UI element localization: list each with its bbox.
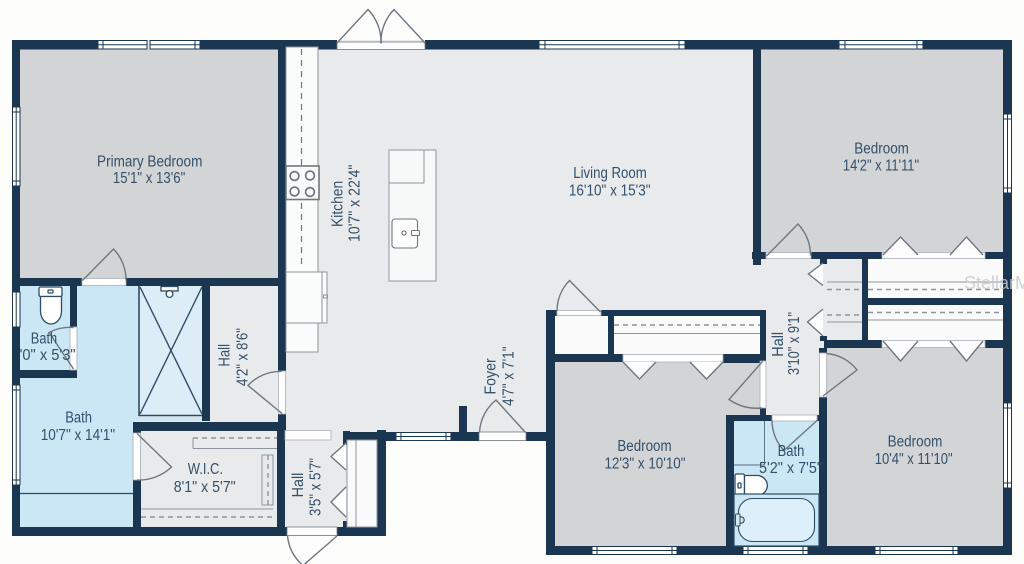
svg-text:Kitchen: Kitchen xyxy=(330,181,347,227)
svg-text:14'2" x 11'11": 14'2" x 11'11" xyxy=(843,158,919,175)
svg-text:StellarMLS: StellarMLS xyxy=(964,273,1024,293)
svg-text:Bath: Bath xyxy=(65,410,92,427)
svg-text:Hall: Hall xyxy=(217,344,234,367)
svg-text:8'1" x 5'7": 8'1" x 5'7" xyxy=(174,479,236,496)
svg-text:'0" x 5'3": '0" x 5'3" xyxy=(20,347,76,364)
svg-text:Foyer: Foyer xyxy=(483,358,500,394)
svg-text:4'2" x 8'6": 4'2" x 8'6" xyxy=(235,328,252,386)
svg-text:4'7" x 7'1": 4'7" x 7'1" xyxy=(501,346,518,406)
svg-text:Bath: Bath xyxy=(31,331,57,348)
svg-text:10'7" x 14'1": 10'7" x 14'1" xyxy=(41,427,115,444)
svg-text:15'1" x 13'6": 15'1" x 13'6" xyxy=(113,170,185,187)
svg-text:Living Room: Living Room xyxy=(573,165,647,182)
svg-text:Bedroom: Bedroom xyxy=(617,438,671,455)
svg-text:Bath: Bath xyxy=(778,443,805,460)
svg-text:Primary Bedroom: Primary Bedroom xyxy=(97,154,202,171)
svg-text:5'2" x 7'5": 5'2" x 7'5" xyxy=(759,460,822,477)
svg-text:Bedroom: Bedroom xyxy=(854,141,909,158)
svg-text:10'4" x 11'10": 10'4" x 11'10" xyxy=(875,451,953,468)
svg-text:Bedroom: Bedroom xyxy=(888,433,943,450)
svg-text:10'7" x 22'4": 10'7" x 22'4" xyxy=(347,165,364,242)
svg-text:W.I.C.: W.I.C. xyxy=(188,461,223,478)
svg-text:12'3" x 10'10": 12'3" x 10'10" xyxy=(604,456,685,473)
svg-text:3'5" x 5'7": 3'5" x 5'7" xyxy=(308,458,325,516)
svg-text:16'10" x 15'3": 16'10" x 15'3" xyxy=(569,182,651,199)
svg-text:Hall: Hall xyxy=(290,473,307,498)
svg-text:3'10" x 9'1": 3'10" x 9'1" xyxy=(786,312,803,375)
svg-text:Hall: Hall xyxy=(770,332,787,357)
